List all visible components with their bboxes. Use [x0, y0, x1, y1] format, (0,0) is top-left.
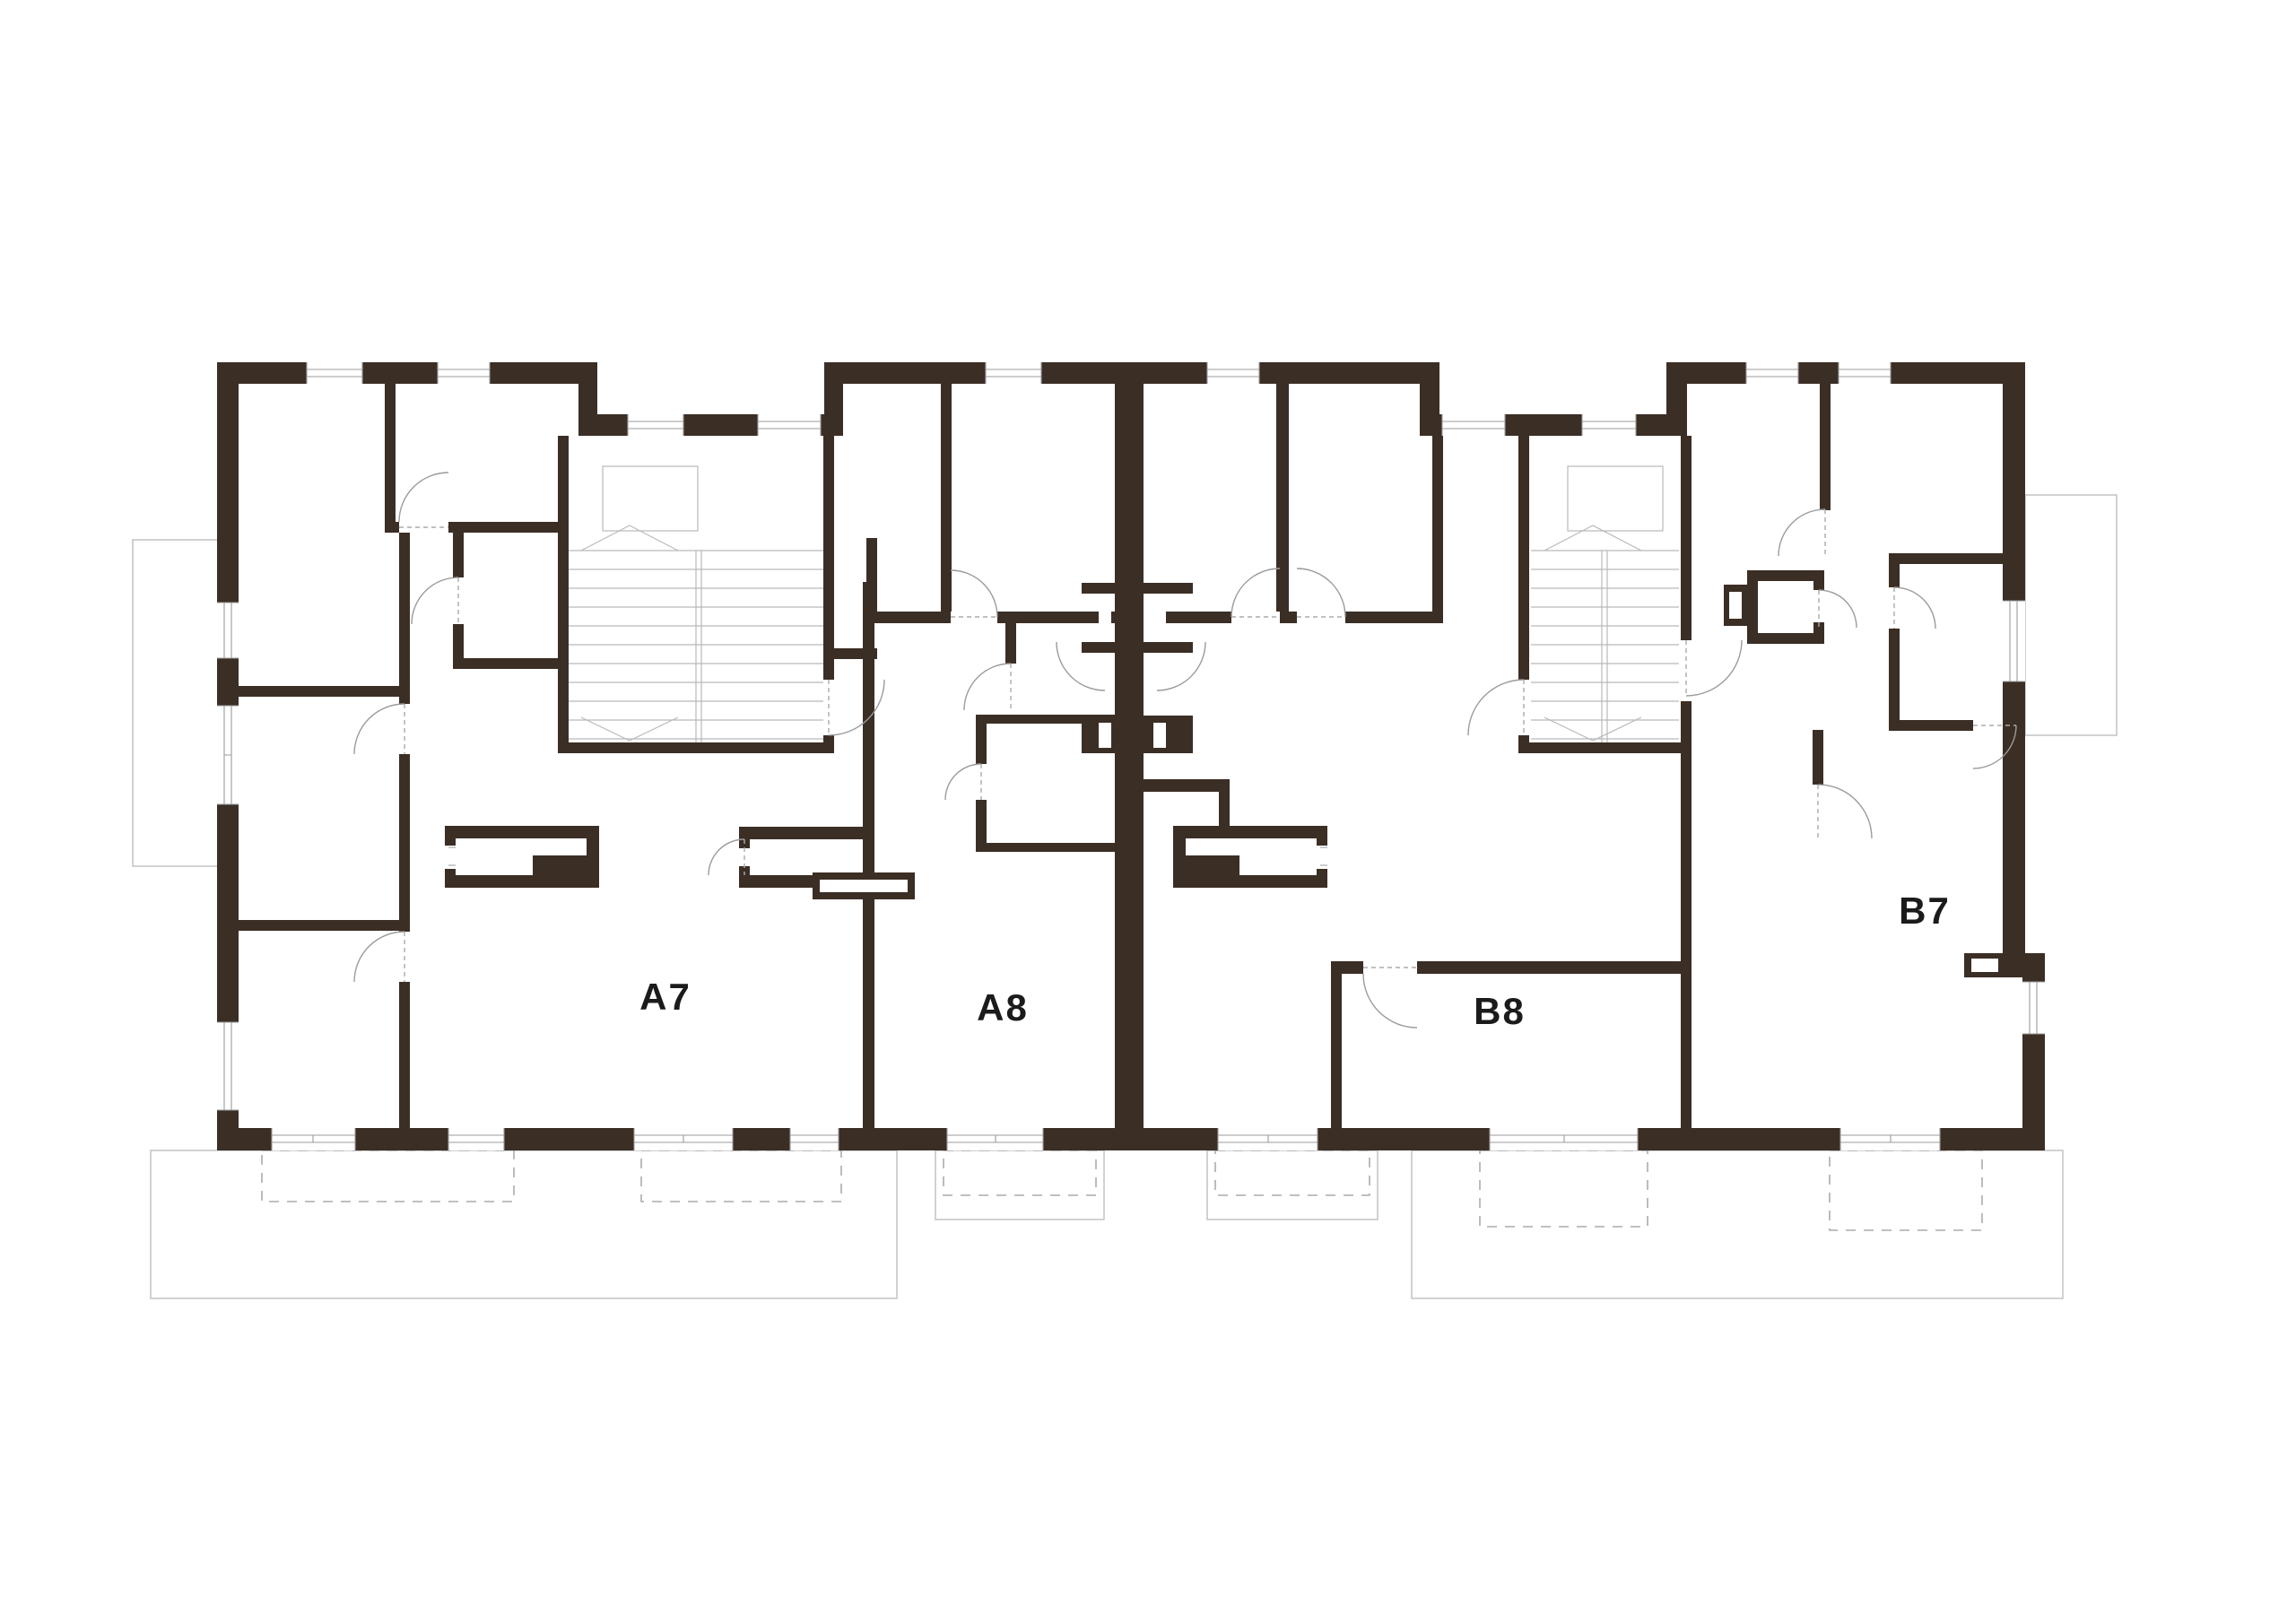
- balcony-dashed-b8: [1480, 1150, 1648, 1227]
- floor-plan: A7 A8 B8 B7: [0, 0, 2296, 1623]
- stair-landing: [1568, 466, 1663, 531]
- terrace-bottom-right: [1412, 1150, 2063, 1298]
- entry-door-b8: [1153, 594, 1166, 642]
- stair-landing: [603, 466, 698, 531]
- floor-plan-page: A7 A8 B8 B7: [0, 0, 2296, 1623]
- balcony-bottom-a8: [935, 1150, 1104, 1219]
- unit-labels: A7 A8 B8 B7: [639, 890, 1951, 1032]
- stair-arrow-down: [1544, 717, 1641, 741]
- unit-label-a8: A8: [977, 986, 1029, 1028]
- vestibule-slot-a8: [1099, 723, 1111, 748]
- unit-label-b8: B8: [1474, 990, 1526, 1032]
- niche-b7: [1729, 592, 1742, 619]
- niche-b7-jog: [1971, 959, 1998, 972]
- balcony-dashed-a7-right: [641, 1150, 841, 1202]
- stairwell-left: [569, 466, 823, 742]
- stair-arrow-down: [581, 717, 678, 741]
- balcony-dashed-a8: [944, 1150, 1096, 1195]
- balcony-dashed-b8-left: [1215, 1150, 1370, 1195]
- terrace-bottom-left: [151, 1150, 897, 1298]
- balcony-left: [133, 540, 224, 866]
- unit-label-b7: B7: [1899, 890, 1951, 932]
- stair-arrow-up: [1544, 525, 1641, 551]
- pass-through-niche-a7: [820, 880, 908, 892]
- balcony-bottom-b8: [1207, 1150, 1378, 1219]
- vestibule-slot-b8: [1153, 723, 1166, 748]
- balcony-dashed-a7-left: [262, 1150, 514, 1202]
- balcony-dashed-b7: [1830, 1150, 1982, 1230]
- entry-door-a8: [1099, 594, 1111, 642]
- stair-arrow-up: [581, 525, 678, 551]
- unit-label-a7: A7: [639, 976, 691, 1018]
- balcony-right: [2025, 495, 2117, 735]
- stairwell-right: [1531, 466, 1679, 742]
- exterior-walls: [217, 362, 2045, 1150]
